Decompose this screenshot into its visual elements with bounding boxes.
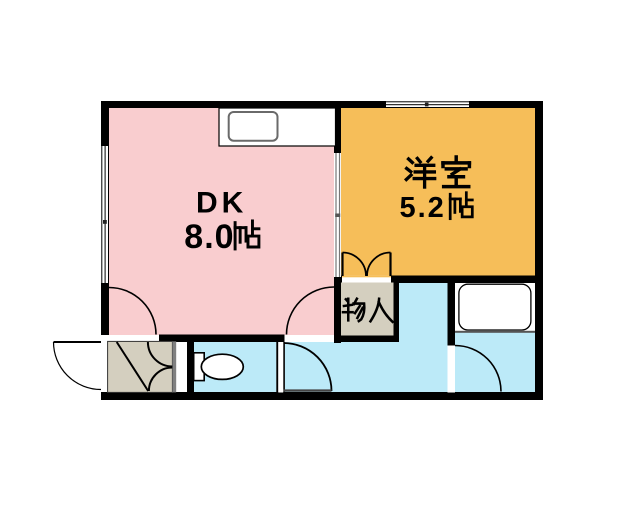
svg-text:DK: DK	[196, 187, 247, 220]
svg-text:5.2: 5.2	[400, 192, 446, 224]
svg-text:8.0: 8.0	[184, 218, 234, 256]
